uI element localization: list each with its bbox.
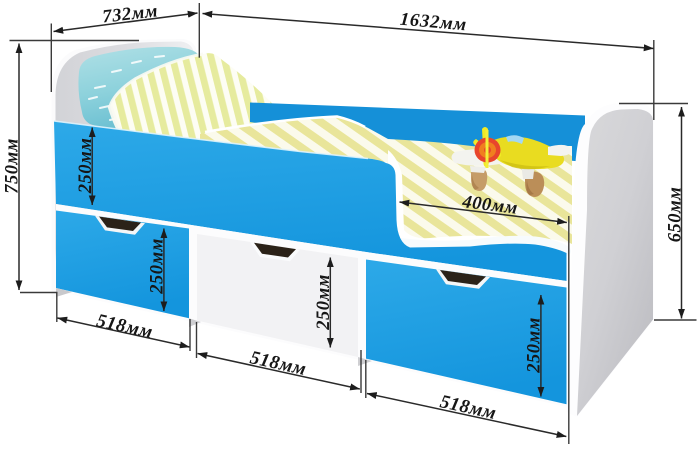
svg-text:250мм: 250мм [148,238,168,295]
svg-text:250мм: 250мм [525,317,545,374]
svg-text:250мм: 250мм [76,138,96,195]
svg-text:650мм: 650мм [665,187,685,243]
svg-text:750мм: 750мм [3,138,23,194]
svg-text:250мм: 250мм [314,274,334,331]
